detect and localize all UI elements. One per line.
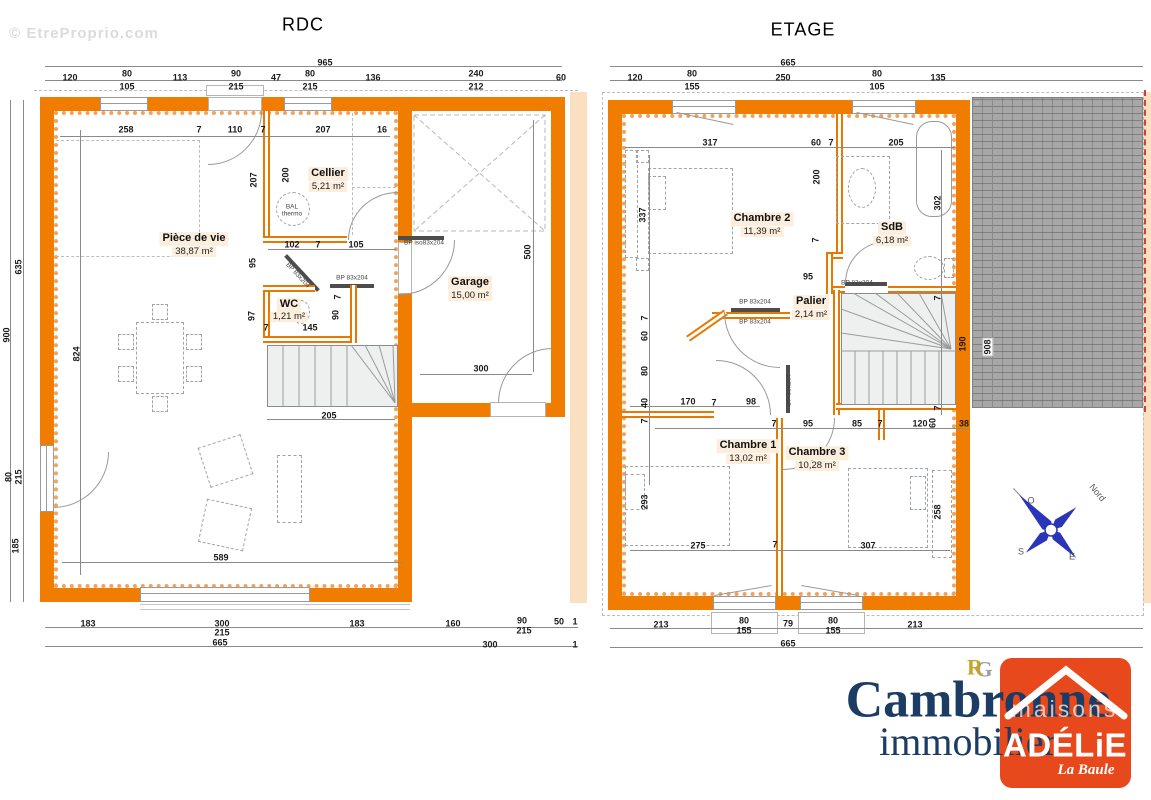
logo-adelie: ADÉLiE (1003, 729, 1127, 764)
dimension-label: 120 (912, 419, 927, 428)
dimension-label: 215 (14, 469, 23, 484)
dimension-label: 7 (640, 315, 649, 320)
partition (888, 286, 956, 293)
window (672, 100, 736, 114)
dimension-label: 7 (933, 405, 942, 410)
dimension-label: 7 (771, 419, 776, 428)
dimension-label: 200 (812, 169, 821, 184)
dim-line (610, 628, 1143, 629)
dimension-label: 7 (711, 398, 716, 407)
dimension-label: 135 (930, 73, 945, 82)
garage-attic-cross (413, 114, 546, 232)
dimension-label: S (1018, 547, 1024, 556)
floor-plan-sheet: © EtreProprio.comRDCETAGE965120801051139… (0, 0, 1151, 800)
room-piece-de-vie: Pièce de vie (160, 232, 229, 246)
dimension-label: 50 (554, 617, 564, 626)
dimension-label: 589 (213, 553, 228, 562)
dimension-label: 500 (523, 244, 532, 259)
room-garage: Garage (448, 276, 492, 290)
nightstand (636, 258, 649, 271)
partition (833, 290, 840, 415)
dimension-label: 80 (872, 69, 882, 78)
dimension-label: O (1027, 496, 1034, 505)
chair (152, 304, 168, 320)
dimension-label: 275 (690, 541, 705, 550)
window (800, 596, 863, 610)
french-door (40, 445, 54, 512)
room-area: 15,00 m² (448, 291, 492, 301)
dim-line (941, 150, 942, 415)
cellier-shelf-dash (352, 187, 396, 188)
dimension-label: 155 (684, 82, 699, 91)
sofa (277, 455, 302, 523)
dimension-label: 307 (860, 541, 875, 550)
dim-line (992, 97, 993, 408)
dimension-label: 213 (653, 620, 668, 629)
room-sdb: SdB (878, 221, 906, 235)
dimension-label: 207 (249, 172, 258, 187)
toilet (914, 256, 944, 280)
chair (118, 334, 134, 350)
dimension-label: 80 (305, 69, 315, 78)
window (852, 100, 916, 114)
dimension-label: 965 (317, 58, 332, 67)
dim-line (45, 627, 578, 628)
dimension-label: 136 (365, 73, 380, 82)
dimension-label: 105 (119, 82, 134, 91)
stairs-rdc (267, 345, 398, 407)
dimension-label: 205 (888, 138, 903, 147)
dimension-label: 145 (302, 323, 317, 332)
room-wc: WC (277, 298, 301, 312)
dimension-label: 824 (72, 346, 81, 361)
boundary-red-line (1144, 90, 1146, 412)
dimension-label: 95 (248, 258, 257, 268)
dim-line (610, 66, 1143, 67)
dimension-label: 293 (640, 494, 649, 509)
dimension-label: 7 (333, 294, 342, 299)
dimension-label: 258 (118, 125, 133, 134)
dimension-label: 215 (302, 82, 317, 91)
dimension-label: 215 (516, 626, 531, 635)
dimension-label: 90 (331, 310, 340, 320)
boundary-strip (570, 92, 587, 603)
room-area: 1,21 m² (270, 312, 308, 322)
partition (350, 285, 357, 343)
dimension-label: 908 (982, 337, 993, 356)
dimension-label: 300 (482, 640, 497, 649)
dimension-label: 183 (349, 619, 364, 628)
dimension-label: 213 (907, 620, 922, 629)
dim-line (630, 550, 950, 551)
dimension-label: 60 (556, 73, 566, 82)
dimension-label: 250 (775, 73, 790, 82)
dimension-label: 635 (14, 259, 23, 274)
dim-line (625, 147, 955, 148)
dimension-label: 80 (687, 69, 697, 78)
room-area: 2,14 m² (792, 310, 830, 320)
dimension-label: 105 (869, 82, 884, 91)
partition (263, 236, 347, 243)
dimension-label: E (1069, 552, 1075, 561)
dimension-label: 16 (377, 125, 387, 134)
dimension-label: 110 (228, 125, 243, 134)
dimension-label: 155 (825, 626, 840, 635)
dimension-label: 7 (877, 419, 882, 428)
dimension-label: 300 (473, 364, 488, 373)
dimension-label: 215 (228, 82, 243, 91)
garage-side-door-gap (490, 402, 546, 417)
dimension-label: 85 (852, 419, 862, 428)
room-chambre-1: Chambre 1 (717, 439, 780, 453)
dining-table (136, 322, 184, 394)
room-chambre-3: Chambre 3 (786, 446, 849, 460)
dim-line (62, 562, 402, 563)
partition (622, 411, 714, 418)
dimension-label: 1 (572, 617, 577, 626)
dimension-label: 7 (811, 237, 820, 242)
room-area: 10,28 m² (795, 461, 839, 471)
dimension-label: 212 (468, 82, 483, 91)
dimension-label: 120 (62, 73, 77, 82)
dimension-label: 113 (173, 73, 188, 82)
logo-maisons: maisons (1012, 697, 1119, 721)
rdc-title: RDC (282, 16, 324, 35)
washbasin (848, 168, 876, 208)
dimension-label: 900 (2, 327, 11, 342)
dim-line (533, 120, 534, 372)
dimension-label: BP 83x204 (739, 320, 771, 327)
stairs-etage (841, 293, 956, 405)
logo-la-baule: La Baule (1057, 763, 1114, 779)
dim-line (610, 647, 1143, 648)
dim-line (45, 66, 562, 67)
chair (186, 334, 202, 350)
dimension-label: 258 (933, 504, 942, 519)
dimension-label: 205 (321, 411, 336, 420)
dimension-label: BP 83x204 (739, 300, 771, 307)
room-area: 6,18 m² (873, 236, 911, 246)
terrace-line (140, 604, 410, 605)
window (713, 596, 776, 610)
sliding-bay (140, 587, 310, 602)
roof-area (972, 97, 1143, 408)
dimension-label: 337 (638, 207, 647, 222)
dimension-label: 207 (315, 125, 330, 134)
dimension-label: 7 (315, 240, 320, 249)
dimension-label: BP 83x204 (841, 281, 873, 288)
dimension-label: 183 (80, 619, 95, 628)
partition (263, 336, 357, 343)
dimension-label: 185 (11, 538, 20, 553)
dim-line (45, 646, 578, 647)
dimension-label: 317 (702, 138, 717, 147)
room-area: 11,39 m² (741, 227, 784, 237)
dimension-label: BP 83x204 (787, 374, 794, 406)
dimension-label: 7 (933, 295, 942, 300)
dimension-label: BP iso83x204 (404, 241, 444, 248)
dimension-label: 1 (572, 640, 577, 649)
dimension-label: 120 (627, 73, 642, 82)
watermark: © EtreProprio.com (9, 26, 159, 42)
dimension-label: 160 (445, 619, 460, 628)
dim-line (10, 100, 11, 602)
dimension-label: 665 (780, 639, 795, 648)
dim-line (420, 374, 532, 375)
armchair (198, 499, 252, 552)
dimension-label: 95 (803, 419, 813, 428)
dimension-label: 240 (468, 69, 483, 78)
dimension-label: 80 (122, 69, 132, 78)
terrace-line (140, 609, 410, 610)
dimension-label: 80 (640, 366, 649, 376)
dimension-label: thermo (282, 212, 302, 219)
window (284, 97, 332, 111)
room-palier: Palier (793, 295, 829, 309)
pillow (910, 476, 926, 510)
toilet-tank (944, 258, 954, 278)
dimension-label: 665 (212, 638, 227, 647)
dimension-label: 665 (780, 58, 795, 67)
cellier-shelf-dash (352, 113, 353, 235)
chair (152, 396, 168, 412)
dimension-label: 7 (828, 138, 833, 147)
dimension-label: 190 (958, 336, 967, 351)
room-area: 38,87 m² (172, 247, 216, 257)
wardrobe (625, 150, 638, 258)
dimension-label: 302 (933, 195, 942, 210)
dimension-label: 7 (772, 540, 777, 549)
room-area: 13,02 m² (726, 454, 770, 464)
dimension-label: 60 (928, 418, 937, 428)
dimension-label: 60 (640, 331, 649, 341)
dimension-label: 7 (640, 418, 649, 423)
etage-title: ETAGE (771, 21, 836, 40)
dimension-label: 47 (271, 73, 281, 82)
room-chambre-2: Chambre 2 (731, 212, 794, 226)
dimension-label: 79 (783, 619, 793, 628)
dimension-label: 90 (231, 69, 241, 78)
monogram-r: R (967, 655, 983, 678)
window (100, 97, 148, 111)
dimension-label: 105 (348, 240, 363, 249)
chair (186, 366, 202, 382)
dim-line (23, 100, 24, 602)
dimension-label: 102 (284, 240, 299, 249)
dimension-label: 95 (803, 272, 813, 281)
dimension-label: 7 (196, 125, 201, 134)
dimension-label: 38 (959, 419, 969, 428)
chair (118, 366, 134, 382)
entrance-door-gap (208, 97, 262, 111)
dimension-label: 155 (736, 626, 751, 635)
dim-line (60, 136, 390, 137)
dimension-label: 7 (260, 125, 265, 134)
pillow (648, 176, 666, 210)
partition (826, 254, 833, 294)
dimension-label: 60 (811, 138, 821, 147)
dimension-label: 7 (263, 323, 268, 332)
dimension-label: 200 (281, 167, 290, 182)
room-area: 5,21 m² (309, 182, 347, 192)
room-cellier: Cellier (308, 167, 348, 181)
dimension-label: 170 (680, 397, 695, 406)
dimension-label: 40 (640, 398, 649, 408)
dimension-label: BP 83x204 (336, 276, 368, 283)
compass-rose (1003, 480, 1099, 576)
dimension-label: 98 (746, 397, 756, 406)
dimension-label: 97 (247, 311, 256, 321)
